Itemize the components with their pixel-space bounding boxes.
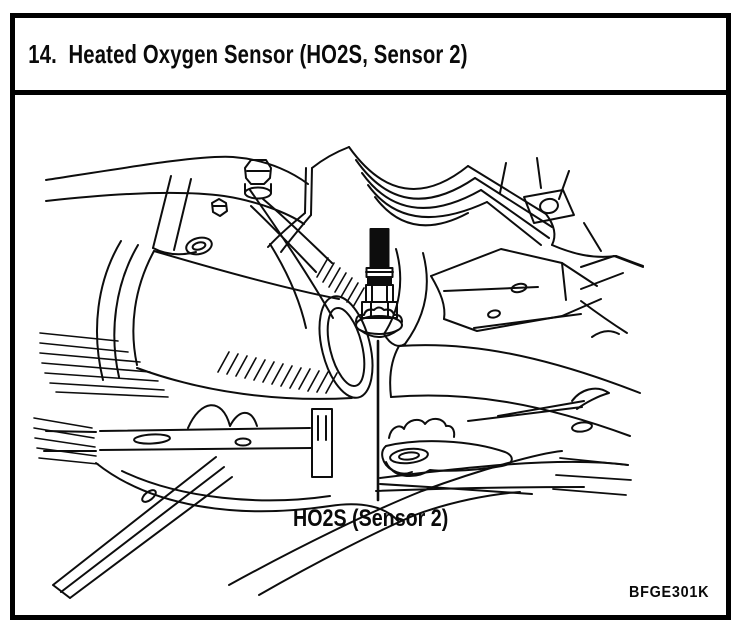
cv-boot [268, 147, 643, 266]
hex-bolt-icon [245, 160, 271, 199]
left-speed-lines [40, 333, 168, 397]
manual-page: { "title_bar": { "title": "14. Heated Ox… [0, 0, 752, 644]
part-callout-label: HO2S (Sensor 2) [293, 505, 448, 533]
lower-left-speed-lines [34, 418, 98, 464]
pipe-hatching [218, 352, 337, 393]
right-subframe [384, 158, 643, 346]
sensor-boss-hatching [317, 258, 364, 307]
hanger-bracket [376, 401, 628, 494]
exhaust-pipe [34, 241, 382, 464]
engine-underbody-diagram [0, 0, 752, 644]
crossmember-rails [44, 405, 398, 521]
small-nut-icon [212, 199, 227, 216]
upper-frame-members [46, 157, 333, 328]
figure-code: BFGE301K [629, 584, 709, 602]
